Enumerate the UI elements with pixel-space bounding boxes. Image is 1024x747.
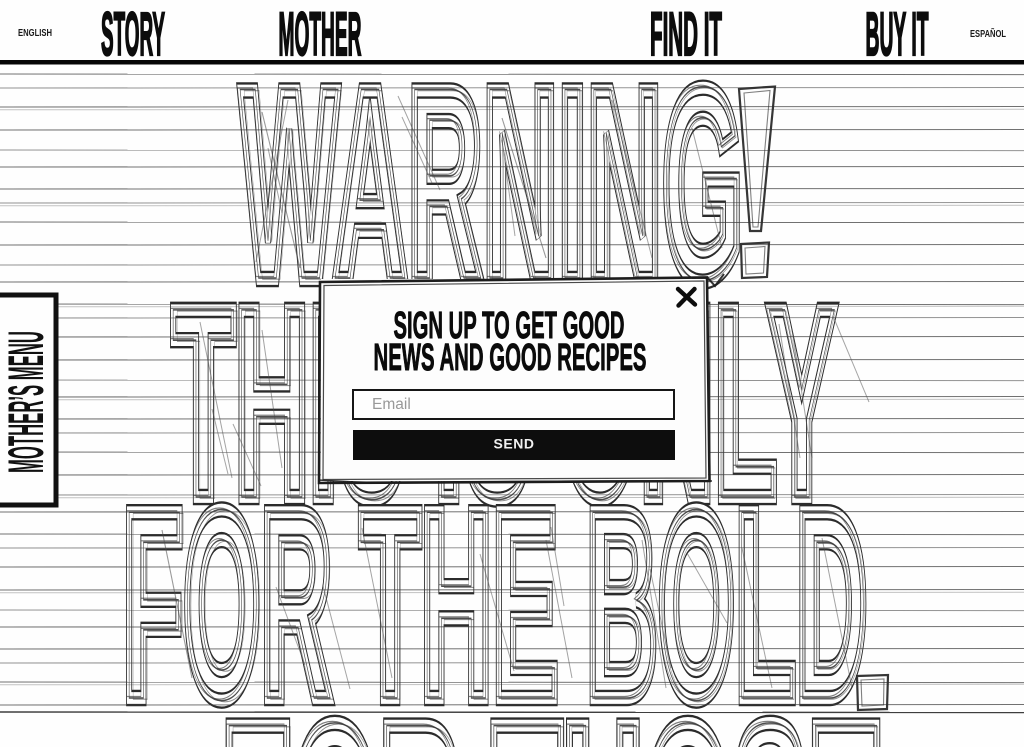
svg-text:ESPAÑOL: ESPAÑOL bbox=[970, 27, 1006, 40]
svg-text:STORY: STORY bbox=[101, 0, 165, 68]
svg-text:MOTHER’S MENU: MOTHER’S MENU bbox=[0, 331, 54, 473]
svg-text:MOTHER: MOTHER bbox=[279, 0, 362, 68]
svg-text:FOR THOSE: FOR THOSE bbox=[222, 667, 884, 747]
svg-text:BUY IT: BUY IT bbox=[866, 0, 929, 68]
svg-text:Email: Email bbox=[372, 396, 411, 413]
svg-text:FIND IT: FIND IT bbox=[650, 0, 722, 68]
svg-text:NEWS AND GOOD RECIPES: NEWS AND GOOD RECIPES bbox=[374, 337, 647, 379]
svg-text:SEND: SEND bbox=[494, 436, 535, 452]
svg-text:ENGLISH: ENGLISH bbox=[18, 28, 52, 39]
